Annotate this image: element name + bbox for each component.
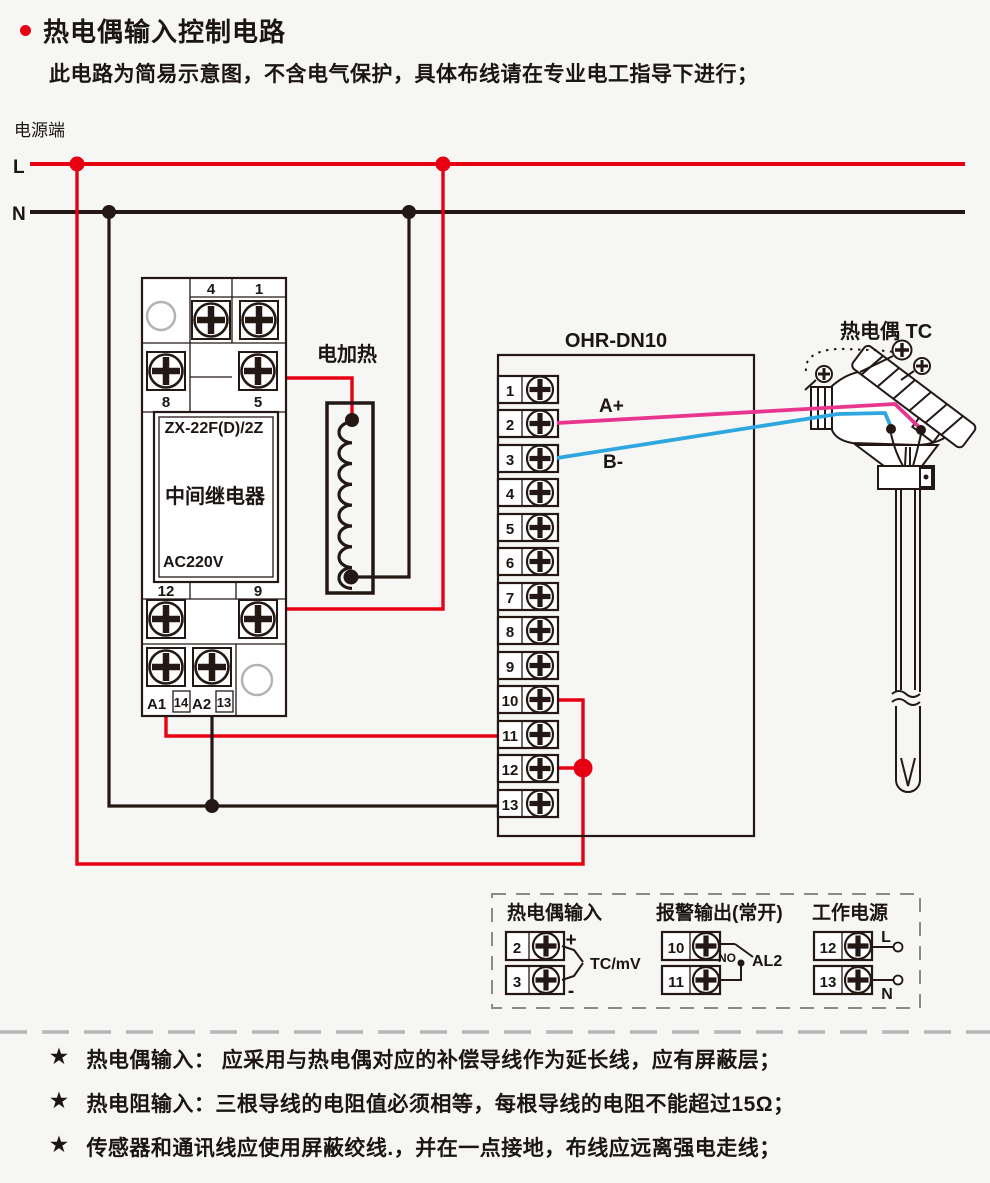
controller-terminal: 8 (498, 617, 558, 644)
svg-text:8: 8 (506, 624, 514, 641)
page-header: 热电偶输入控制电路 (20, 12, 286, 49)
relay-terminal-A1: A1 (147, 696, 166, 713)
note-text: 热电偶输入： 应采用与热电偶对应的补偿导线作为延长线，应有屏蔽层； (86, 1044, 780, 1074)
relay-terminal-5: 5 (254, 394, 262, 411)
star-icon: ★ (50, 1132, 68, 1158)
page-subtitle: 此电路为简易示意图，不含电气保护，具体布线请在专业电工指导下进行； (49, 58, 759, 88)
controller-terminal: 3 (498, 445, 558, 472)
heater-bottom-node (344, 570, 359, 585)
legend-alarm-title: 报警输出(常开) (656, 901, 783, 924)
controller-terminal: 4 (498, 479, 558, 506)
svg-text:6: 6 (506, 555, 514, 572)
note-item: ★ 热电偶输入： 应采用与热电偶对应的补偿导线作为延长线，应有屏蔽层； (50, 1044, 781, 1074)
legend-tc-input-title: 热电偶输入 (507, 901, 602, 924)
tc-terminal-node (916, 425, 926, 435)
probe-break (892, 691, 920, 705)
controller-terminal: 9 (498, 652, 558, 679)
terminal-legend: 热电偶输入 2 3 + - TC/mV 报警输出(常开) 10 11 NO AL… (492, 894, 920, 1008)
junction-dot (70, 157, 85, 172)
legend-supply-title: 工作电源 (812, 901, 888, 924)
power-terminal-label: 电源端 (14, 121, 65, 140)
relay-terminal-13: 13 (217, 695, 231, 710)
relay-terminal-8: 8 (162, 394, 170, 411)
a-plus-label: A+ (599, 396, 624, 417)
tc-mv-label: TC/mV (590, 956, 641, 973)
controller-terminal: 12 (498, 755, 558, 782)
svg-text:1: 1 (506, 383, 514, 400)
neutral-label: N (12, 204, 26, 225)
relay-terminal-12: 12 (158, 583, 175, 600)
svg-text:11: 11 (502, 728, 518, 745)
supply-n-pin (894, 976, 903, 985)
minus-sign: - (568, 981, 574, 1002)
wire-heater-to-neutral (351, 212, 409, 577)
relay-terminal-1: 1 (255, 281, 263, 298)
relay-block: 4 1 8 5 ZX-22F(D)/2Z 中间继电器 AC220V 12 9 A… (142, 278, 286, 716)
legend-terminal-2: 2 (513, 940, 521, 957)
svg-text:12: 12 (502, 762, 519, 779)
no-label: NO (718, 951, 736, 965)
controller-terminal: 7 (498, 583, 558, 610)
heater-coil (339, 422, 352, 588)
relay-terminal-A2: A2 (192, 696, 211, 713)
alarm-contact-dot (738, 960, 745, 967)
supply-n-label: N (881, 986, 893, 1003)
controller-title: OHR-DN10 (565, 330, 667, 352)
thermocouple-label: 热电偶 TC (840, 319, 932, 343)
relay-terminal-4: 4 (207, 281, 216, 298)
junction-dot (402, 205, 416, 219)
svg-text:5: 5 (506, 521, 514, 538)
thermocouple-graphic: 热电偶 TC (805, 319, 977, 792)
svg-text:7: 7 (506, 590, 514, 607)
svg-text:4: 4 (506, 486, 515, 503)
heater: 电加热 (317, 343, 377, 593)
heater-label: 电加热 (317, 343, 377, 366)
note-item: ★ 热电阻输入：三根导线的电阻值必须相等，每根导线的电阻不能超过15Ω； (50, 1088, 795, 1118)
page-title: 热电偶输入控制电路 (43, 12, 286, 49)
probe-tip-mark (901, 758, 915, 786)
note-text: 热电阻输入：三根导线的电阻值必须相等，每根导线的电阻不能超过15Ω； (86, 1088, 794, 1118)
supply-l-pin (894, 943, 903, 952)
junction-dot (205, 799, 219, 813)
svg-text:3: 3 (506, 452, 514, 469)
controller-terminal: 6 (498, 548, 558, 575)
junction-dot (102, 205, 116, 219)
legend-terminal-11: 11 (668, 974, 684, 991)
live-label: L (13, 157, 25, 178)
supply-l-label: L (881, 929, 891, 946)
relay-voltage: AC220V (163, 554, 224, 571)
circuit-diagram: 电源端 L N 4 1 8 5 ZX-22F(D)/2Z (0, 0, 990, 1183)
controller-block: OHR-DN10 1 2 3 4 5 (498, 330, 754, 836)
note-text: 传感器和通讯线应使用屏蔽绞线.，并在一点接地，布线应远离强电走线； (86, 1132, 780, 1162)
relay-terminal-14: 14 (174, 695, 189, 710)
tc-terminal-node (886, 424, 896, 434)
relay-name: 中间继电器 (165, 484, 266, 508)
junction-dot (436, 157, 451, 172)
legend-terminal-10: 10 (668, 940, 685, 957)
bullet-icon (20, 25, 31, 36)
controller-terminal: 5 (498, 514, 558, 541)
controller-terminal: 10 (498, 686, 558, 713)
tc-mv-bracket (562, 946, 583, 980)
controller-terminal: 2 (498, 410, 558, 437)
legend-terminal-12: 12 (820, 940, 837, 957)
controller-terminal: 13 (498, 790, 558, 817)
legend-terminal-3: 3 (513, 974, 521, 991)
svg-text:9: 9 (506, 659, 514, 676)
relay-mount-hole (147, 302, 175, 330)
svg-text:13: 13 (502, 797, 519, 814)
relay-model: ZX-22F(D)/2Z (165, 420, 264, 437)
legend-terminal-13: 13 (820, 974, 837, 991)
b-minus-label: B- (603, 452, 623, 473)
junction-dot (574, 759, 593, 778)
note-item: ★ 传感器和通讯线应使用屏蔽绞线.，并在一点接地，布线应远离强电走线； (50, 1132, 781, 1162)
alarm-name: AL2 (752, 953, 782, 970)
wiring-diagram-page: 电源端 L N 4 1 8 5 ZX-22F(D)/2Z (0, 0, 990, 1183)
star-icon: ★ (50, 1088, 68, 1114)
svg-text:2: 2 (506, 417, 514, 434)
relay-terminal-9: 9 (254, 583, 262, 600)
heater-top-node (345, 413, 359, 427)
controller-terminal: 1 (498, 376, 558, 403)
controller-terminal: 11 (498, 721, 558, 748)
svg-text:10: 10 (502, 693, 519, 710)
relay-mount-hole (242, 665, 272, 695)
star-icon: ★ (50, 1044, 68, 1070)
